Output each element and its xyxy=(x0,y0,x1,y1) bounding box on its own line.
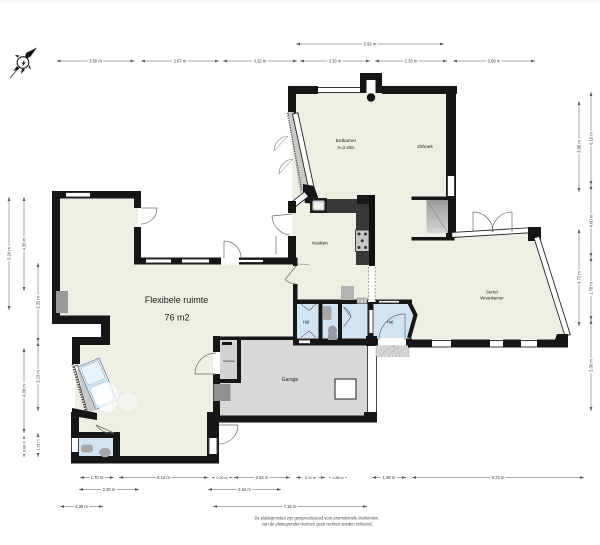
svg-text:3.23 m: 3.23 m xyxy=(35,370,40,383)
svg-text:2.54 m: 2.54 m xyxy=(238,487,251,492)
svg-text:5.92 m: 5.92 m xyxy=(364,42,377,47)
svg-text:Hal: Hal xyxy=(303,320,310,325)
svg-text:2.67 m: 2.67 m xyxy=(174,59,187,64)
svg-text:2.38 m: 2.38 m xyxy=(75,504,88,509)
svg-text:1.70 m: 1.70 m xyxy=(91,475,104,480)
svg-text:4.60 m: 4.60 m xyxy=(588,214,593,227)
svg-text:Meterkast: Meterkast xyxy=(223,359,235,363)
svg-text:Keuken: Keuken xyxy=(312,241,328,246)
svg-text:0.80 m: 0.80 m xyxy=(22,441,26,452)
svg-text:Zithoek: Zithoek xyxy=(417,144,433,150)
svg-text:Serre/: Serre/ xyxy=(486,290,499,295)
svg-text:3.32 m: 3.32 m xyxy=(254,59,267,64)
svg-text:7.16 m: 7.16 m xyxy=(284,504,297,509)
svg-text:5.11 m: 5.11 m xyxy=(305,476,316,480)
svg-text:4.08 m: 4.08 m xyxy=(21,384,26,397)
svg-text:Flexibele ruimte: Flexibele ruimte xyxy=(145,295,209,305)
svg-text:6.10 m: 6.10 m xyxy=(588,132,593,145)
svg-text:Aan de plattegronden kunnen ge: Aan de plattegronden kunnen geen rechten… xyxy=(261,522,372,527)
svg-text:1.78 m: 1.78 m xyxy=(588,282,593,295)
svg-text:H=2.40m: H=2.40m xyxy=(337,145,355,150)
svg-text:Hal: Hal xyxy=(387,320,394,325)
svg-text:3.33 m: 3.33 m xyxy=(329,59,342,64)
svg-text:Woonkamer: Woonkamer xyxy=(480,296,504,301)
svg-text:0.30 m: 0.30 m xyxy=(217,476,228,480)
svg-text:2.69 m: 2.69 m xyxy=(488,59,501,64)
svg-text:76 m2: 76 m2 xyxy=(164,313,189,323)
svg-text:1.91 m: 1.91 m xyxy=(36,440,40,451)
svg-text:5.24 m: 5.24 m xyxy=(6,247,11,260)
svg-text:2.62 m: 2.62 m xyxy=(256,475,269,480)
svg-text:De plattegronden zijn gereprod: De plattegronden zijn gereproduceerd voo… xyxy=(255,516,380,521)
svg-text:4.72 m: 4.72 m xyxy=(576,271,581,284)
svg-text:3.50 m: 3.50 m xyxy=(89,59,102,64)
svg-text:3.88 m: 3.88 m xyxy=(576,140,581,153)
svg-text:2.20 m: 2.20 m xyxy=(103,487,116,492)
svg-text:3.36 m: 3.36 m xyxy=(588,359,593,372)
svg-text:3.32 m: 3.32 m xyxy=(35,296,40,309)
svg-text:Eetkamer: Eetkamer xyxy=(336,138,357,144)
svg-text:1.98 m: 1.98 m xyxy=(383,475,396,480)
svg-text:Garage: Garage xyxy=(282,377,299,383)
svg-text:6.14 m: 6.14 m xyxy=(157,475,170,480)
svg-text:9.73 m: 9.73 m xyxy=(492,475,505,480)
svg-text:4.36 m: 4.36 m xyxy=(21,237,26,250)
svg-text:2.33 m: 2.33 m xyxy=(405,59,418,64)
svg-text:0.88 m: 0.88 m xyxy=(333,476,344,480)
